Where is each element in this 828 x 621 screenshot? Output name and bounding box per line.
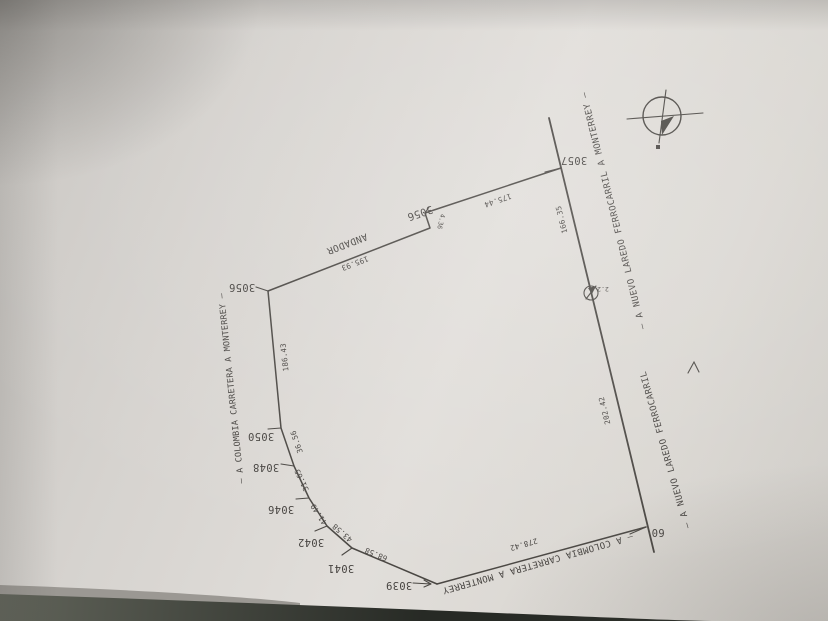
station-marker-icon [584, 286, 598, 300]
measurement-3048-3046: 31.65 [293, 467, 311, 492]
photo-of-survey-plat: 3056 3056 3057 3050 3048 3046 3042 3041 … [0, 0, 828, 621]
lot-number-3057: 3057 [561, 154, 588, 166]
plat-drawing: 3056 3056 3057 3050 3048 3046 3042 3041 … [217, 90, 703, 595]
corner-number-60: 60 [651, 526, 664, 538]
lot-number-3042: 3042 [298, 536, 325, 548]
lot-number-3048: 3048 [253, 461, 280, 473]
lot-number-3041: 3041 [328, 562, 355, 574]
boundary-top-line [268, 168, 561, 291]
measurement-jog: 4.36 [435, 213, 446, 230]
measurement-3041-3039: 68.58 [363, 545, 388, 563]
station-marker-label: 2.2 [597, 285, 609, 293]
measurement-west: 186.43 [279, 343, 291, 372]
compass-rose-icon [627, 90, 703, 149]
left-road-label: — A COLOMBIA CARRETERA A MONTERREY — [217, 292, 247, 484]
walkway-label: ANDADOR [325, 231, 369, 257]
measurement-3046-3042: 41.49 [309, 502, 329, 527]
desk-surface [0, 594, 712, 621]
measurement-rail-upper: 166.35 [554, 205, 570, 235]
paper-sheet: 3056 3056 3057 3050 3048 3046 3042 3041 … [0, 0, 828, 621]
lot-number-3056-jog: 3056 [405, 203, 434, 223]
direction-arrow-icon [688, 362, 699, 373]
lot-number-3056-nw: 3056 [229, 281, 256, 293]
lot-number-3039: 3039 [386, 579, 413, 591]
corner-ticks [256, 168, 646, 555]
measurement-rail-lower: 202.42 [597, 396, 613, 426]
measurement-south: 278.42 [509, 536, 539, 552]
measurement-3050-3048: 36.56 [288, 429, 304, 454]
boundary-south-line [437, 527, 646, 584]
lot-number-3046: 3046 [268, 503, 295, 515]
railroad-lower-label: — A NUEVO LAREDO FERROCARRIL [639, 370, 694, 529]
measurement-top-east: 175.44 [483, 192, 513, 210]
lot-number-3050: 3050 [248, 430, 275, 442]
